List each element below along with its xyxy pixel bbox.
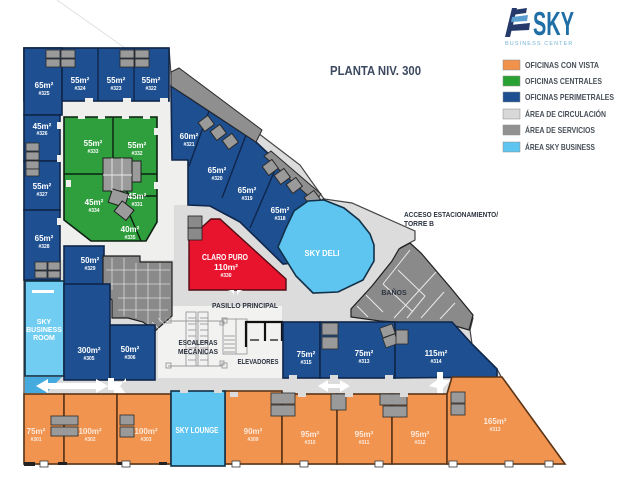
- svg-text:#321: #321: [183, 142, 194, 148]
- svg-text:OFICINAS PERIMETRALES: OFICINAS PERIMETRALES: [525, 92, 614, 102]
- svg-text:75m²: 75m²: [27, 427, 46, 436]
- svg-text:#312: #312: [414, 440, 425, 446]
- svg-text:95m²: 95m²: [355, 430, 374, 439]
- svg-text:55m²: 55m²: [71, 76, 90, 85]
- svg-text:ÁREA DE CIRCULACIÓN: ÁREA DE CIRCULACIÓN: [525, 108, 606, 119]
- svg-text:50m²: 50m²: [81, 256, 100, 265]
- svg-text:#306: #306: [124, 355, 135, 361]
- svg-text:BUSINESS: BUSINESS: [26, 327, 62, 334]
- svg-text:300m²: 300m²: [77, 346, 100, 355]
- svg-text:45m²: 45m²: [85, 198, 104, 207]
- svg-text:55m²: 55m²: [84, 139, 103, 148]
- svg-text:45m²: 45m²: [33, 122, 52, 131]
- svg-text:#322: #322: [145, 86, 156, 92]
- svg-text:#302: #302: [84, 437, 95, 443]
- svg-text:MECÁNICAS: MECÁNICAS: [178, 347, 218, 356]
- svg-text:#332: #332: [131, 151, 142, 157]
- svg-text:SKY LOUNGE: SKY LOUNGE: [176, 426, 220, 435]
- svg-text:95m²: 95m²: [301, 430, 320, 439]
- svg-text:165m²: 165m²: [483, 417, 506, 426]
- svg-text:BAÑOS: BAÑOS: [381, 288, 407, 297]
- svg-text:#327: #327: [36, 192, 47, 198]
- svg-text:55m²: 55m²: [142, 76, 161, 85]
- svg-text:#326: #326: [36, 131, 47, 137]
- svg-text:#319: #319: [241, 196, 252, 202]
- svg-text:PLANTA NIV. 300: PLANTA NIV. 300: [330, 64, 421, 78]
- svg-text:55m²: 55m²: [33, 182, 52, 191]
- svg-text:PASILLO PRINCIPAL: PASILLO PRINCIPAL: [212, 301, 278, 310]
- svg-text:90m²: 90m²: [244, 427, 263, 436]
- svg-text:#303: #303: [140, 437, 151, 443]
- svg-text:ROOM: ROOM: [33, 335, 55, 342]
- svg-text:75m²: 75m²: [297, 350, 316, 359]
- svg-text:SKY DELI: SKY DELI: [305, 249, 340, 258]
- svg-text:95m²: 95m²: [411, 430, 430, 439]
- svg-text:#333: #333: [87, 149, 98, 155]
- svg-text:#315: #315: [300, 360, 311, 366]
- svg-text:100m²: 100m²: [78, 427, 101, 436]
- svg-text:ELEVADORES: ELEVADORES: [238, 357, 279, 366]
- svg-text:#311: #311: [359, 440, 370, 446]
- svg-text:50m²: 50m²: [121, 345, 140, 354]
- svg-text:#330: #330: [220, 273, 231, 279]
- svg-text:65m²: 65m²: [271, 206, 290, 215]
- svg-text:ÁREA SKY BUSINESS: ÁREA SKY BUSINESS: [525, 142, 595, 152]
- svg-text:#328: #328: [38, 244, 49, 250]
- svg-text:#335: #335: [124, 235, 135, 241]
- svg-text:OFICINAS CON VISTA: OFICINAS CON VISTA: [525, 60, 599, 70]
- svg-text:55m²: 55m²: [107, 76, 126, 85]
- svg-text:#329: #329: [84, 266, 95, 272]
- svg-text:#325: #325: [38, 91, 49, 97]
- svg-text:SKY: SKY: [533, 5, 574, 42]
- svg-text:#313: #313: [489, 427, 500, 433]
- svg-text:#331: #331: [131, 202, 142, 208]
- svg-text:ÁREA DE SERVICIOS: ÁREA DE SERVICIOS: [525, 125, 595, 135]
- svg-text:#309: #309: [247, 437, 258, 443]
- svg-text:75m²: 75m²: [355, 349, 374, 358]
- svg-text:65m²: 65m²: [35, 234, 54, 243]
- svg-text:#310: #310: [304, 440, 315, 446]
- svg-text:SKY: SKY: [37, 319, 52, 326]
- svg-text:#313: #313: [358, 359, 369, 365]
- svg-text:110m²: 110m²: [214, 263, 238, 272]
- svg-text:CLARO PURO: CLARO PURO: [202, 253, 248, 262]
- svg-text:65m²: 65m²: [238, 186, 257, 195]
- svg-text:#320: #320: [211, 176, 222, 182]
- svg-text:65m²: 65m²: [208, 166, 227, 175]
- svg-text:#305: #305: [83, 356, 94, 362]
- svg-text:60m²: 60m²: [180, 132, 199, 141]
- svg-text:#318: #318: [274, 216, 285, 222]
- svg-text:55m²: 55m²: [128, 141, 147, 150]
- svg-text:ESCALERAS: ESCALERAS: [179, 338, 218, 347]
- svg-text:45m²: 45m²: [128, 192, 147, 201]
- svg-text:#314: #314: [430, 359, 441, 365]
- svg-text:BUSINESS CENTER: BUSINESS CENTER: [505, 41, 573, 47]
- svg-text:#324: #324: [74, 86, 85, 92]
- svg-text:TORRE B: TORRE B: [404, 219, 434, 228]
- svg-text:#301: #301: [30, 437, 41, 443]
- svg-text:100m²: 100m²: [134, 427, 157, 436]
- svg-text:65m²: 65m²: [35, 81, 54, 90]
- svg-text:#334: #334: [88, 208, 99, 214]
- svg-text:40m²: 40m²: [121, 225, 140, 234]
- svg-text:115m²: 115m²: [425, 349, 448, 358]
- svg-text:#323: #323: [110, 86, 121, 92]
- svg-text:OFICINAS CENTRALES: OFICINAS CENTRALES: [525, 76, 602, 86]
- svg-text:ACCESO ESTACIONAMIENTO/: ACCESO ESTACIONAMIENTO/: [404, 210, 499, 219]
